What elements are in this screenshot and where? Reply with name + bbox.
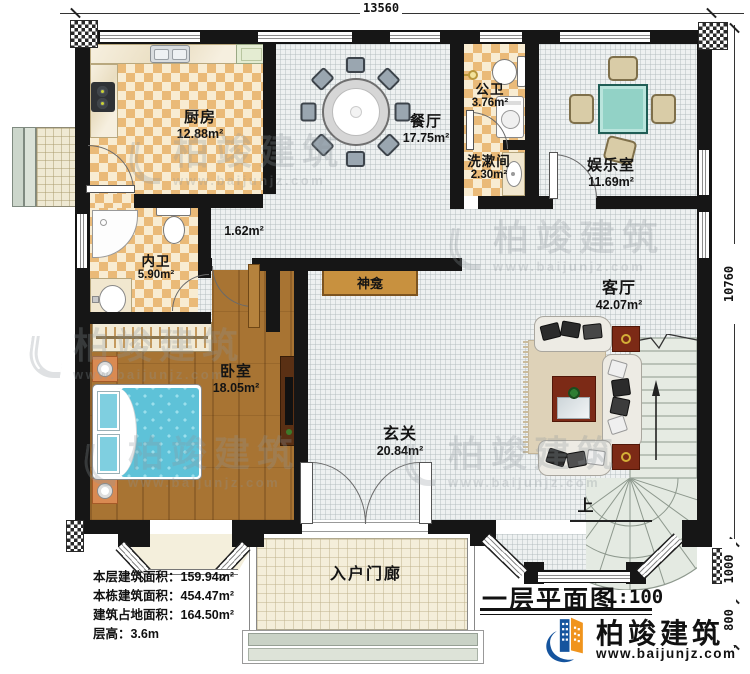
window-public-bath [480,30,522,44]
wall-innerbath-bottom [75,312,211,324]
dining-table-center [350,106,362,118]
info-line-1: 本层建筑面积：159.94m² [93,568,234,587]
game-chair [651,94,676,124]
sofa-bottom [538,440,612,476]
entry-door-leaf-right [419,462,432,524]
side-platform-tile [36,127,80,207]
plant [566,385,582,401]
sofa-pillow [545,447,568,467]
window-right-1 [697,150,712,195]
dining-chair [346,151,365,167]
wall-shrine-stub [204,258,212,271]
watermark-logo-icon [26,336,66,378]
dim-right-bottom-value: 800 [722,595,736,645]
room-label-public-bath: 公卫 3.76m² [462,82,518,110]
washer-drum [501,110,520,129]
sink-basin-right [172,49,187,60]
game-chair [569,94,594,124]
entertainment-door-leaf [549,152,558,199]
gold-ring [621,334,631,344]
burner-2-flame [101,102,104,105]
wall-bottom-2 [262,520,302,534]
stairs-up-line [570,520,652,522]
sofa-pillow [607,359,628,379]
burner-1-flame [101,90,104,93]
dining-chair [301,103,317,122]
sofa-pillow [582,323,602,340]
wardrobe [92,322,212,352]
info-line-3: 建筑占地面积：164.50m² [93,606,234,625]
room-label-inner-bath: 内卫 5.90m² [126,254,186,282]
dining-chair [346,57,365,73]
room-label-hall-small: 1.62m² [214,224,274,238]
dining-table [322,78,390,146]
kitchen-board [236,44,266,64]
room-label-kitchen: 厨房 12.88m² [160,110,240,141]
porch-side-left [249,538,257,632]
dim-right-mid-value: 1000 [722,539,736,599]
innerbath-basin [99,285,126,314]
window-dining-1 [258,30,352,44]
coffee-table [552,376,596,422]
room-label-foyer: 玄关 20.84m² [355,426,445,458]
corner-hatch-tr [698,22,728,50]
info-line-2: 本栋建筑面积：454.47m² [93,587,234,606]
sofa-pillow [611,378,631,397]
room-label-bedroom: 卧室 18.05m² [203,364,269,395]
toilet-bowl [163,216,185,244]
stove [91,82,115,112]
sofa-pillow [539,322,561,341]
porch-floor [256,538,468,630]
corner-hatch-bl [66,520,84,552]
innerbath-faucet [92,296,99,303]
wardrobe-rod [96,336,208,339]
wall-shrine [252,258,462,271]
washroom-door-gap [464,196,478,209]
window-right-2 [697,212,712,258]
room-label-living: 客厅 42.07m² [584,280,654,312]
sofa-top [534,316,612,352]
gold-ring [621,452,631,462]
room-label-dining: 餐厅 17.75m² [388,114,464,145]
dim-right-value: 10760 [722,244,736,324]
window-entertainment [560,30,650,44]
shower-drain [100,219,107,226]
porch-step-1 [248,633,478,646]
shrine-shelf: 神龛 [322,268,418,296]
sink-basin-left [154,49,169,60]
window-dining-2 [390,30,440,44]
floor-plan-canvas: 神龛 [0,0,750,674]
wall-left [75,30,90,534]
window-inner-bath [75,214,90,268]
porch-step-2 [248,648,478,661]
corner-hatch-tl [70,20,98,48]
bedroom-door-leaf [248,264,260,328]
side-platform-strip-2 [24,127,36,207]
kitchen-sink [150,45,190,63]
building-info: 本层建筑面积：159.94m² 本栋建筑面积：454.47m² 建筑占地面积：1… [93,568,234,644]
sofa-pillow [607,415,628,435]
plan-scale: 1:100 [606,586,663,608]
sofa-pillow [566,450,587,468]
brand-logo-icon [542,610,594,664]
info-line-4: 层高：3.6m [93,625,234,644]
wall-bath-right [525,44,539,209]
wall-bedroom-entry [266,258,280,332]
bed-pillow-2 [98,435,119,473]
side-table-top [612,326,640,352]
wall-right [697,30,712,530]
stairs-up-label: 上 [574,498,598,516]
side-platform-strip-1 [12,127,24,207]
tv [285,377,293,425]
window-kitchen [100,30,200,44]
entry-door-leaf-left [300,462,313,524]
wall-kitchen-right [263,44,276,194]
lamp [97,483,113,499]
wall-ent-bottom-2 [596,196,697,209]
game-table [598,84,648,134]
wall-bottom-3 [428,520,472,534]
kitchen-door-floor [86,194,134,208]
bed-pillow-1 [98,392,119,430]
board-inner [241,48,262,61]
public-bath-door-leaf [466,110,474,150]
kitchen-door-leaf [86,185,135,193]
bed [92,384,202,480]
plant-small [286,429,292,435]
brand-url: www.baijunjz.com [596,646,737,661]
toilet-inner [156,206,192,246]
nightstand-1 [92,356,118,382]
wall-washroom-bottom [478,196,539,209]
sofa-pillow [609,396,630,416]
bay-pillar [232,520,264,547]
porch-side-right [467,538,475,632]
sofa-right [602,354,642,448]
bay-pillar [682,520,712,547]
sofa-pillow [560,320,581,338]
sofa-pillow [586,449,606,466]
side-table-bottom [612,444,640,470]
shrine-label: 神龛 [357,273,383,292]
room-label-porch: 入户门廊 [326,566,406,584]
game-chair [608,56,638,81]
nightstand-2 [92,478,118,504]
room-label-washroom: 洗漱间 2.30m² [458,154,520,182]
wall-kitchen-bottom [134,194,263,208]
dim-top-value: 13560 [360,1,402,15]
rug-fringe [523,341,529,453]
lamp [97,361,113,377]
bath-valve [468,70,478,80]
room-label-entertainment: 娱乐室 11.69m² [578,158,644,189]
